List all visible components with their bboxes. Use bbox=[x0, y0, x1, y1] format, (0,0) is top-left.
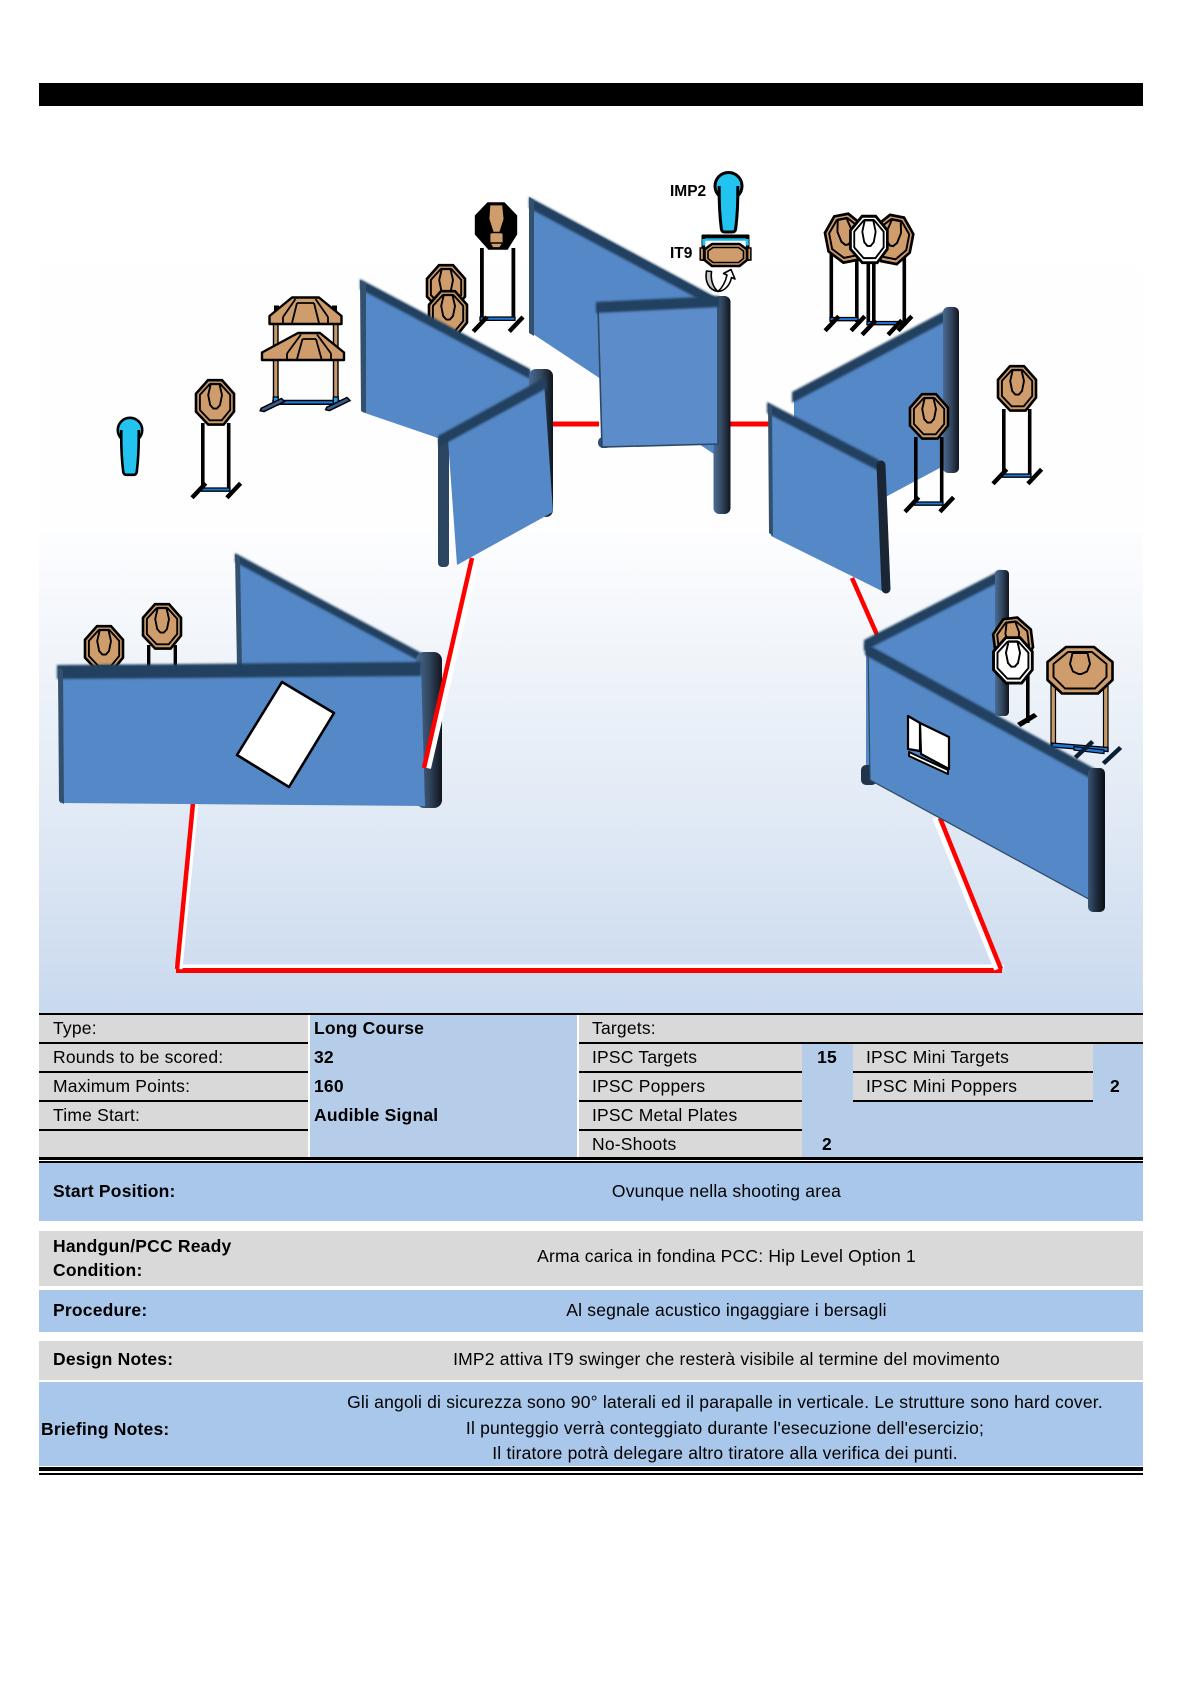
svg-text:IT9: IT9 bbox=[670, 245, 693, 262]
svg-text:IMP2: IMP2 bbox=[670, 183, 706, 200]
